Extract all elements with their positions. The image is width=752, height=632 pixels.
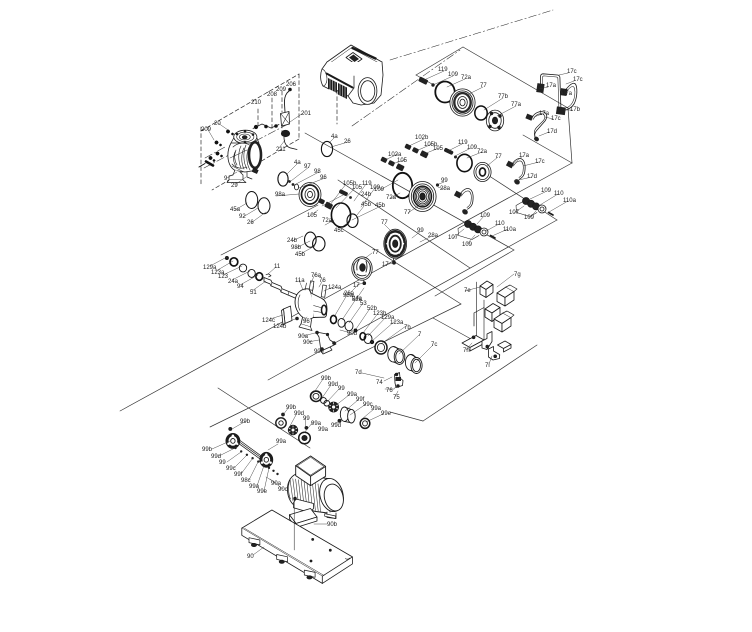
svg-text:76: 76 — [386, 388, 393, 394]
svg-text:26: 26 — [344, 139, 351, 145]
svg-text:77: 77 — [495, 154, 502, 160]
svg-text:90c: 90c — [303, 340, 313, 346]
svg-text:210: 210 — [251, 100, 262, 106]
svg-text:77: 77 — [372, 250, 379, 256]
svg-text:90: 90 — [247, 554, 254, 560]
svg-text:109: 109 — [541, 188, 552, 194]
svg-text:17: 17 — [353, 283, 360, 289]
svg-text:105: 105 — [433, 146, 444, 152]
svg-text:28a: 28a — [440, 186, 451, 192]
svg-text:99e: 99e — [257, 489, 268, 495]
svg-text:201: 201 — [301, 111, 312, 117]
svg-text:17d: 17d — [547, 129, 557, 135]
svg-text:11a: 11a — [295, 278, 305, 284]
svg-text:77: 77 — [480, 83, 487, 89]
svg-text:96: 96 — [303, 319, 310, 325]
svg-text:123a: 123a — [390, 320, 404, 326]
svg-text:110: 110 — [554, 191, 564, 197]
svg-text:77b: 77b — [498, 94, 509, 100]
svg-text:17c: 17c — [567, 69, 577, 75]
svg-text:72a: 72a — [477, 149, 488, 155]
svg-text:7i: 7i — [485, 363, 490, 369]
svg-text:17a: 17a — [546, 83, 557, 89]
svg-text:77: 77 — [404, 210, 411, 216]
svg-text:45b: 45b — [295, 252, 306, 258]
svg-text:90d: 90d — [347, 331, 357, 337]
svg-text:45b: 45b — [375, 203, 386, 209]
svg-text:110a: 110a — [563, 198, 577, 204]
svg-text:7c: 7c — [431, 342, 437, 348]
svg-text:206: 206 — [286, 82, 297, 88]
svg-text:124b: 124b — [273, 324, 287, 330]
svg-text:77a: 77a — [511, 102, 522, 108]
svg-text:72a: 72a — [461, 75, 472, 81]
svg-text:109: 109 — [370, 185, 381, 191]
svg-text:17: 17 — [382, 262, 389, 268]
svg-text:98b: 98b — [291, 245, 302, 251]
svg-text:211: 211 — [276, 147, 286, 153]
svg-text:7e: 7e — [464, 288, 471, 294]
svg-text:45c: 45c — [334, 228, 344, 234]
svg-text:76: 76 — [319, 278, 326, 284]
svg-text:99e: 99e — [381, 411, 392, 417]
svg-text:74: 74 — [376, 380, 383, 386]
svg-text:75: 75 — [393, 395, 400, 401]
svg-text:105: 105 — [397, 158, 408, 164]
svg-text:99: 99 — [417, 228, 424, 234]
svg-text:90c: 90c — [278, 487, 288, 493]
svg-text:17c: 17c — [551, 116, 561, 122]
svg-text:109: 109 — [462, 242, 473, 248]
svg-text:99a: 99a — [276, 439, 287, 445]
svg-text:98a: 98a — [275, 192, 286, 198]
svg-text:20: 20 — [214, 121, 221, 127]
svg-text:17c: 17c — [535, 159, 545, 165]
svg-text:45a: 45a — [230, 207, 241, 213]
svg-text:24b: 24b — [361, 192, 372, 198]
svg-text:96: 96 — [320, 175, 327, 181]
svg-text:124a: 124a — [328, 285, 342, 291]
svg-text:4a: 4a — [294, 160, 301, 166]
svg-text:7g: 7g — [514, 272, 521, 278]
svg-text:99d: 99d — [328, 382, 338, 388]
svg-text:17a: 17a — [519, 153, 530, 159]
svg-text:7b: 7b — [404, 325, 411, 331]
svg-text:7h: 7h — [463, 348, 470, 354]
svg-text:110a: 110a — [503, 227, 517, 233]
svg-text:109: 109 — [480, 213, 491, 219]
svg-text:105: 105 — [307, 213, 318, 219]
svg-text:209: 209 — [201, 127, 212, 133]
svg-text:26: 26 — [247, 220, 254, 226]
svg-text:102b: 102b — [415, 135, 429, 141]
svg-text:11: 11 — [274, 264, 281, 270]
svg-text:7: 7 — [418, 332, 422, 338]
svg-text:107: 107 — [509, 210, 520, 216]
svg-text:72a: 72a — [322, 218, 333, 224]
svg-text:99b: 99b — [202, 447, 213, 453]
svg-text:99b: 99b — [240, 419, 251, 425]
svg-text:17a: 17a — [539, 111, 550, 117]
svg-text:28a: 28a — [428, 233, 439, 239]
svg-text:24b: 24b — [287, 238, 298, 244]
svg-text:99d: 99d — [331, 423, 341, 429]
svg-text:99a: 99a — [318, 427, 329, 433]
svg-text:17a: 17a — [562, 91, 573, 97]
svg-text:119: 119 — [438, 67, 448, 73]
svg-text:17c: 17c — [573, 77, 583, 83]
svg-text:92: 92 — [239, 214, 246, 220]
svg-text:107: 107 — [448, 235, 459, 241]
svg-text:72a: 72a — [386, 195, 397, 201]
svg-text:109: 109 — [448, 72, 459, 78]
svg-text:99: 99 — [303, 416, 310, 422]
svg-text:51: 51 — [250, 290, 257, 296]
svg-text:45b: 45b — [361, 202, 372, 208]
svg-text:4a: 4a — [331, 134, 338, 140]
svg-text:7d: 7d — [355, 370, 362, 376]
svg-text:17b: 17b — [570, 107, 581, 113]
svg-text:29: 29 — [231, 183, 238, 189]
svg-text:90b: 90b — [327, 522, 338, 528]
svg-text:97: 97 — [304, 164, 311, 170]
svg-text:90e: 90e — [314, 349, 325, 355]
svg-text:17d: 17d — [527, 174, 537, 180]
svg-text:99: 99 — [338, 386, 345, 392]
svg-text:99: 99 — [441, 178, 448, 184]
svg-text:94: 94 — [237, 284, 244, 290]
svg-text:77: 77 — [381, 220, 388, 226]
svg-text:109: 109 — [524, 215, 535, 221]
